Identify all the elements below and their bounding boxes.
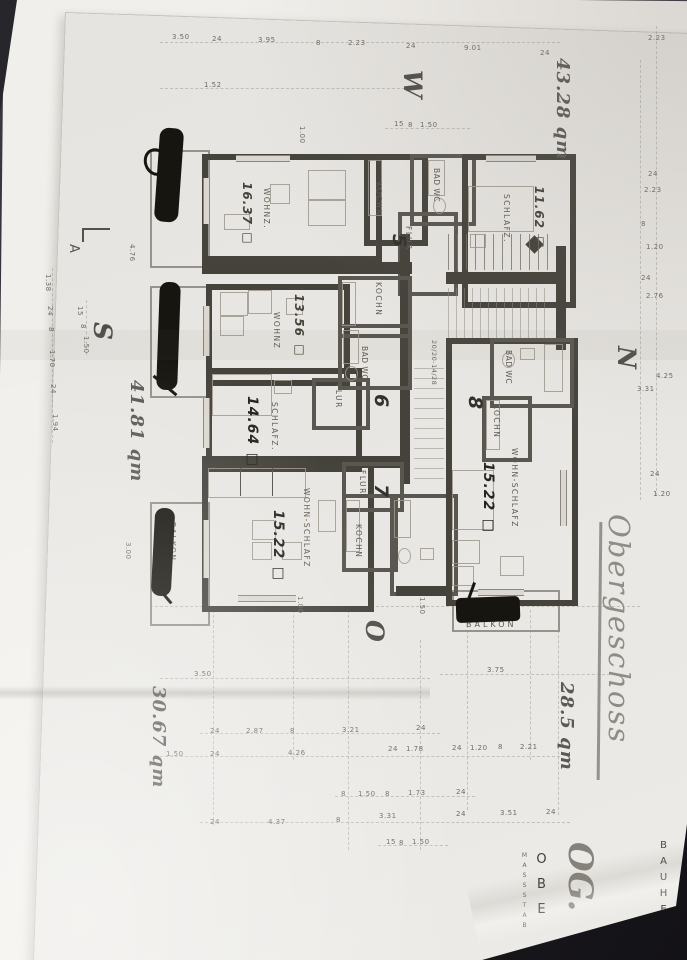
dimension-line <box>200 733 440 734</box>
section-marker-line <box>82 228 110 230</box>
dimension-label: 1.20 <box>646 243 664 251</box>
dimension-label: 24 <box>210 818 220 826</box>
dimension-label: 1.50 <box>82 336 90 354</box>
dimension-label: 8 <box>341 790 346 798</box>
dimension-label: 8 <box>316 39 321 47</box>
dimension-label: 2.87 <box>246 727 264 735</box>
room-label-bad-6: BAD WC <box>360 346 369 380</box>
window <box>203 520 210 578</box>
dimension-label: 24 <box>416 724 426 732</box>
compass-south: S <box>88 322 117 340</box>
dimension-line <box>160 756 560 757</box>
dimension-label: 1.00 <box>296 596 304 614</box>
wall-stair-right <box>556 246 566 350</box>
dimension-label: 2.23 <box>348 39 366 47</box>
handwritten-floor-title: Obergeschoss <box>602 514 636 744</box>
dimension-label: 8 <box>408 121 413 129</box>
room-label-wohnz-5: WOHNZ. <box>262 188 271 229</box>
furniture-outline <box>220 316 244 336</box>
room-label-kochn-7: KOCHN <box>354 524 363 558</box>
furniture-outline <box>452 540 480 564</box>
room-area-wohnz-6: 13.56 □ <box>292 294 306 357</box>
room-label-flur-7: FLUR <box>358 470 367 495</box>
bed-outline <box>468 186 534 232</box>
window <box>478 589 524 596</box>
furniture-outline <box>308 200 346 226</box>
room-label-schlafz-5: SCHLAFZ. <box>502 194 511 243</box>
window <box>236 155 290 162</box>
furniture-outline <box>470 234 486 248</box>
dimension-label: 24 <box>210 750 220 758</box>
dimension-label: 1.50 <box>412 838 430 846</box>
room-label-bad-8: BAD WC <box>504 350 513 384</box>
dimension-label: 3.50 <box>172 33 190 41</box>
dimension-label: 24 <box>456 810 466 818</box>
dimension-label: 24 <box>49 384 57 394</box>
stair-note: 20/20-14/28 <box>430 340 438 385</box>
dimension-line <box>213 610 214 825</box>
dimension-line <box>293 610 294 760</box>
room-label-kochn-8: KOCHN <box>492 404 501 438</box>
sink <box>520 348 535 360</box>
dimension-label: 4.76 <box>128 244 136 262</box>
dimension-line <box>656 26 657 496</box>
dimension-label: 3.75 <box>487 666 505 674</box>
dimension-label: 8 <box>385 790 390 798</box>
compass-north: N <box>612 346 641 369</box>
marker-redaction-balkon6 <box>156 282 181 391</box>
dimension-label: 8 <box>336 816 341 824</box>
furniture-outline <box>500 556 524 576</box>
dimension-line <box>530 610 531 760</box>
dimension-label: 1.78 <box>406 745 424 753</box>
dimension-label: 24 <box>210 727 220 735</box>
window <box>203 398 210 448</box>
dimension-line <box>200 822 570 823</box>
dimension-line <box>467 610 468 810</box>
photo-frame: BALKON WOHNZ. 16.37 □ KOCHN BAD WC SCHLA… <box>0 0 687 960</box>
handwritten-area-apt8: 28.5 qm <box>556 682 577 771</box>
room-area-wohnschlafz-7: 15.22 □ <box>270 510 286 582</box>
dimension-label: 24 <box>46 306 54 316</box>
room-area-wohnz-5: 16.37 □ <box>240 182 254 245</box>
stair-treads-corridor <box>414 368 444 480</box>
furniture-outline <box>452 566 474 586</box>
marker-redaction-balkon8 <box>456 596 521 623</box>
dimension-label: 3.21 <box>342 726 360 734</box>
dimension-label: 2.23 <box>648 34 666 42</box>
dimension-label: 24 <box>388 745 398 753</box>
dimension-label: 9.01 <box>464 44 482 52</box>
dimension-label: 15 <box>76 306 84 316</box>
printed-title-letters: OBE <box>534 852 549 927</box>
handwritten-area-apt7: 30.67 qm <box>148 686 169 788</box>
dimension-label: 3.95 <box>258 36 276 44</box>
dimension-label: 15 <box>394 120 404 128</box>
window <box>238 595 296 602</box>
room-label-bad-5: BAD WC <box>432 168 441 202</box>
apartment-number-8: 8 <box>464 396 486 409</box>
dimension-label: 24 <box>650 470 660 478</box>
dimension-line <box>440 674 610 675</box>
dimension-label: 1.50 <box>418 597 426 615</box>
dimension-label: 1.52 <box>204 81 222 89</box>
dimension-label: 8 <box>399 839 404 847</box>
dimension-label: 3.00 <box>124 542 132 560</box>
stair-treads-lower <box>448 288 552 344</box>
dimension-label: 1.20 <box>470 744 488 752</box>
floor-plan-layer: BALKON WOHNZ. 16.37 □ KOCHN BAD WC SCHLA… <box>0 0 687 960</box>
dimension-label: 3.51 <box>500 809 518 817</box>
toilet <box>398 548 411 564</box>
furniture-outline <box>252 542 272 560</box>
bed-outline <box>212 374 272 416</box>
handwritten-area-apt6: 41.81 qm <box>126 380 147 482</box>
wall-stair <box>446 272 566 284</box>
room-area-schlafz-5: 11.62 □ <box>532 186 546 249</box>
dimension-label: 8 <box>47 327 55 332</box>
dimension-label: 24 <box>641 274 651 282</box>
kitchen-counter <box>342 282 356 326</box>
dimension-label: 8 <box>79 324 87 329</box>
section-marker-line <box>82 228 84 242</box>
dimension-label: 4.25 <box>656 372 674 380</box>
compass-east: O <box>360 620 389 642</box>
dimension-line <box>335 796 475 797</box>
room-label-wohnschlafz-7: WOHN-SCHLAFZ <box>302 488 311 568</box>
wall-entry <box>396 586 448 596</box>
dimension-label: 4.26 <box>288 749 306 757</box>
handwritten-area-apt5: 43.28 qm <box>552 58 573 160</box>
furniture-outline <box>220 292 248 316</box>
dimension-label: 1.50 <box>358 790 376 798</box>
wardrobe-divider <box>272 468 273 496</box>
dimension-label: 2.23 <box>644 186 662 194</box>
dimension-label: 1.50 <box>166 750 184 758</box>
bathtub <box>544 344 563 392</box>
dimension-label: 1.20 <box>653 490 671 498</box>
dimension-label: 1.00 <box>298 126 306 144</box>
printed-margin-word: BAUHE <box>658 840 669 920</box>
dimension-label: 8 <box>641 220 646 228</box>
bathtub <box>343 330 359 364</box>
dimension-line <box>160 88 410 89</box>
dimension-label: 1.94 <box>51 414 59 432</box>
apartment-number-6: 6 <box>370 394 392 407</box>
window <box>203 178 210 224</box>
room-area-schlafz-6: 14.64 □ <box>244 396 260 468</box>
bathtub <box>394 500 411 538</box>
dimension-label: 8 <box>498 743 503 751</box>
section-marker-a: A <box>66 244 81 253</box>
window <box>203 306 210 356</box>
room-label-kochn-5: KOCHN <box>374 182 383 216</box>
furniture-outline <box>270 184 290 204</box>
room-label-wohnz-6: WOHNZ <box>272 312 281 349</box>
wardrobe <box>208 468 306 498</box>
printed-scale-word: MASSSTAB <box>521 852 528 932</box>
dimension-label: 4.37 <box>268 818 286 826</box>
window <box>486 155 536 162</box>
dimension-label: 1.38 <box>44 274 52 292</box>
dimension-label: 3.50 <box>194 670 212 678</box>
room-label-flur-6: FLUR <box>334 384 343 409</box>
dimension-label: 24 <box>648 170 658 178</box>
dimension-label: 24 <box>406 42 416 50</box>
compass-west: W <box>398 70 427 98</box>
dimension-label: 24 <box>212 35 222 43</box>
dimension-label: 1.50 <box>420 121 438 129</box>
dimension-label: 2.21 <box>520 743 538 751</box>
window <box>560 470 567 526</box>
furniture-outline <box>308 170 346 200</box>
room-label-wohnschlafz-8: WOHN-SCHLAFZ <box>510 448 519 528</box>
dimension-label: 8 <box>290 727 295 735</box>
dimension-label: 1.70 <box>48 350 56 368</box>
furniture-outline <box>274 380 292 394</box>
dimension-label: 24 <box>546 808 556 816</box>
dimension-line <box>160 678 430 679</box>
apartment-number-7: 7 <box>370 484 392 497</box>
dimension-label: 15 <box>386 838 396 846</box>
room-label-schlafz-6: SCHLAFZ. <box>270 402 279 451</box>
dimension-label: 24 <box>540 49 550 57</box>
dimension-label: 1.73 <box>408 789 426 797</box>
furniture-outline <box>318 500 336 532</box>
dimension-label: 2.76 <box>646 292 664 300</box>
wardrobe-divider <box>240 468 241 496</box>
toilet <box>345 366 358 381</box>
furniture-outline <box>248 290 272 314</box>
dimension-label: 3.31 <box>379 812 397 820</box>
apartment-number-5: 5 <box>388 234 410 247</box>
wall-apt5-living <box>202 154 382 262</box>
handwritten-floor-abbr: OG. <box>560 842 600 911</box>
dimension-label: 3.31 <box>637 385 655 393</box>
dimension-label: 24 <box>456 788 466 796</box>
room-area-wohnschlafz-8: 15.22 □ <box>480 462 496 534</box>
wall-divider-5-6 <box>202 262 412 274</box>
dimension-label: 24 <box>452 744 462 752</box>
room-label-kochn-6: KOCHN <box>374 282 383 316</box>
sink <box>420 548 434 560</box>
